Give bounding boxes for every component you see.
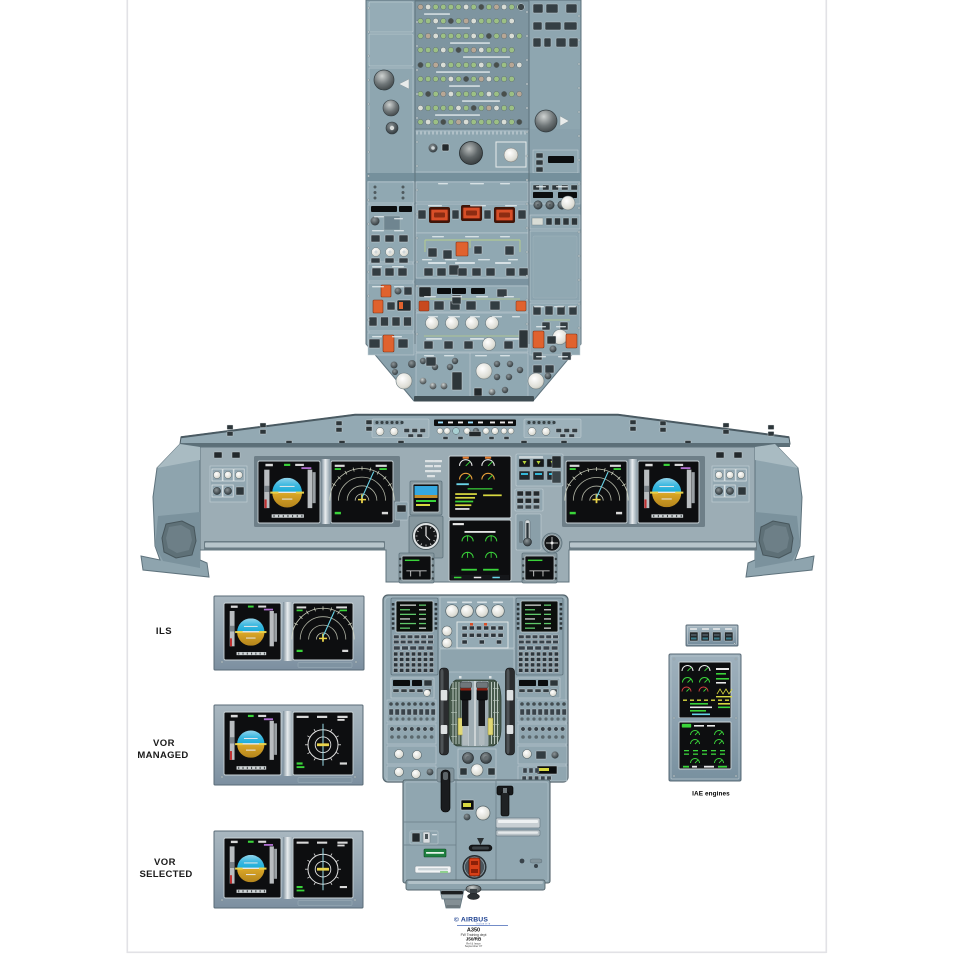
svg-text:VOR: VOR [153,738,175,749]
svg-text:I n d u s t r i e: I n d u s t r i e [476,922,491,925]
svg-text:September 07: September 07 [465,944,483,948]
svg-text:SELECTED: SELECTED [139,869,192,880]
svg-text:MANAGED: MANAGED [137,750,188,761]
svg-text:VOR: VOR [154,857,176,868]
svg-text:ILS: ILS [156,626,172,637]
svg-text:IAE engines: IAE engines [692,791,730,798]
